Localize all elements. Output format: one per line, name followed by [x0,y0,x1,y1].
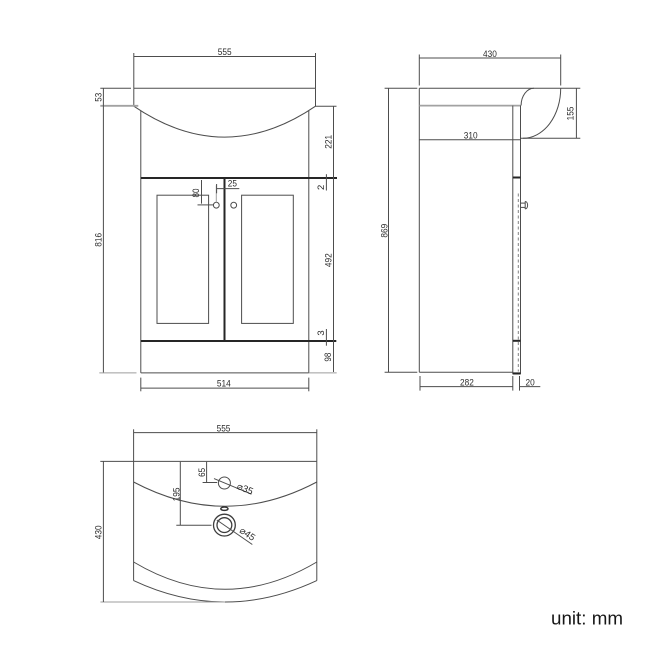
svg-text:282: 282 [460,377,474,388]
svg-text:⌀45: ⌀45 [237,525,257,543]
svg-text:514: 514 [217,378,231,389]
svg-text:65: 65 [197,468,208,477]
svg-text:80: 80 [191,189,202,198]
svg-text:555: 555 [218,47,232,58]
svg-text:155: 155 [566,107,577,121]
svg-text:221: 221 [324,135,335,149]
svg-text:2: 2 [316,185,327,190]
svg-text:430: 430 [93,525,104,539]
svg-text:25: 25 [228,179,237,190]
svg-text:195: 195 [171,488,182,502]
svg-text:3: 3 [316,330,327,335]
svg-text:20: 20 [526,377,535,388]
svg-text:310: 310 [464,131,478,142]
svg-text:816: 816 [94,233,105,247]
svg-text:unit: mm: unit: mm [551,607,623,628]
svg-text:430: 430 [483,49,497,60]
svg-text:492: 492 [324,253,335,267]
svg-text:555: 555 [217,423,231,434]
svg-text:98: 98 [323,353,334,362]
svg-text:⌀35: ⌀35 [235,481,254,497]
svg-text:869: 869 [380,224,391,238]
